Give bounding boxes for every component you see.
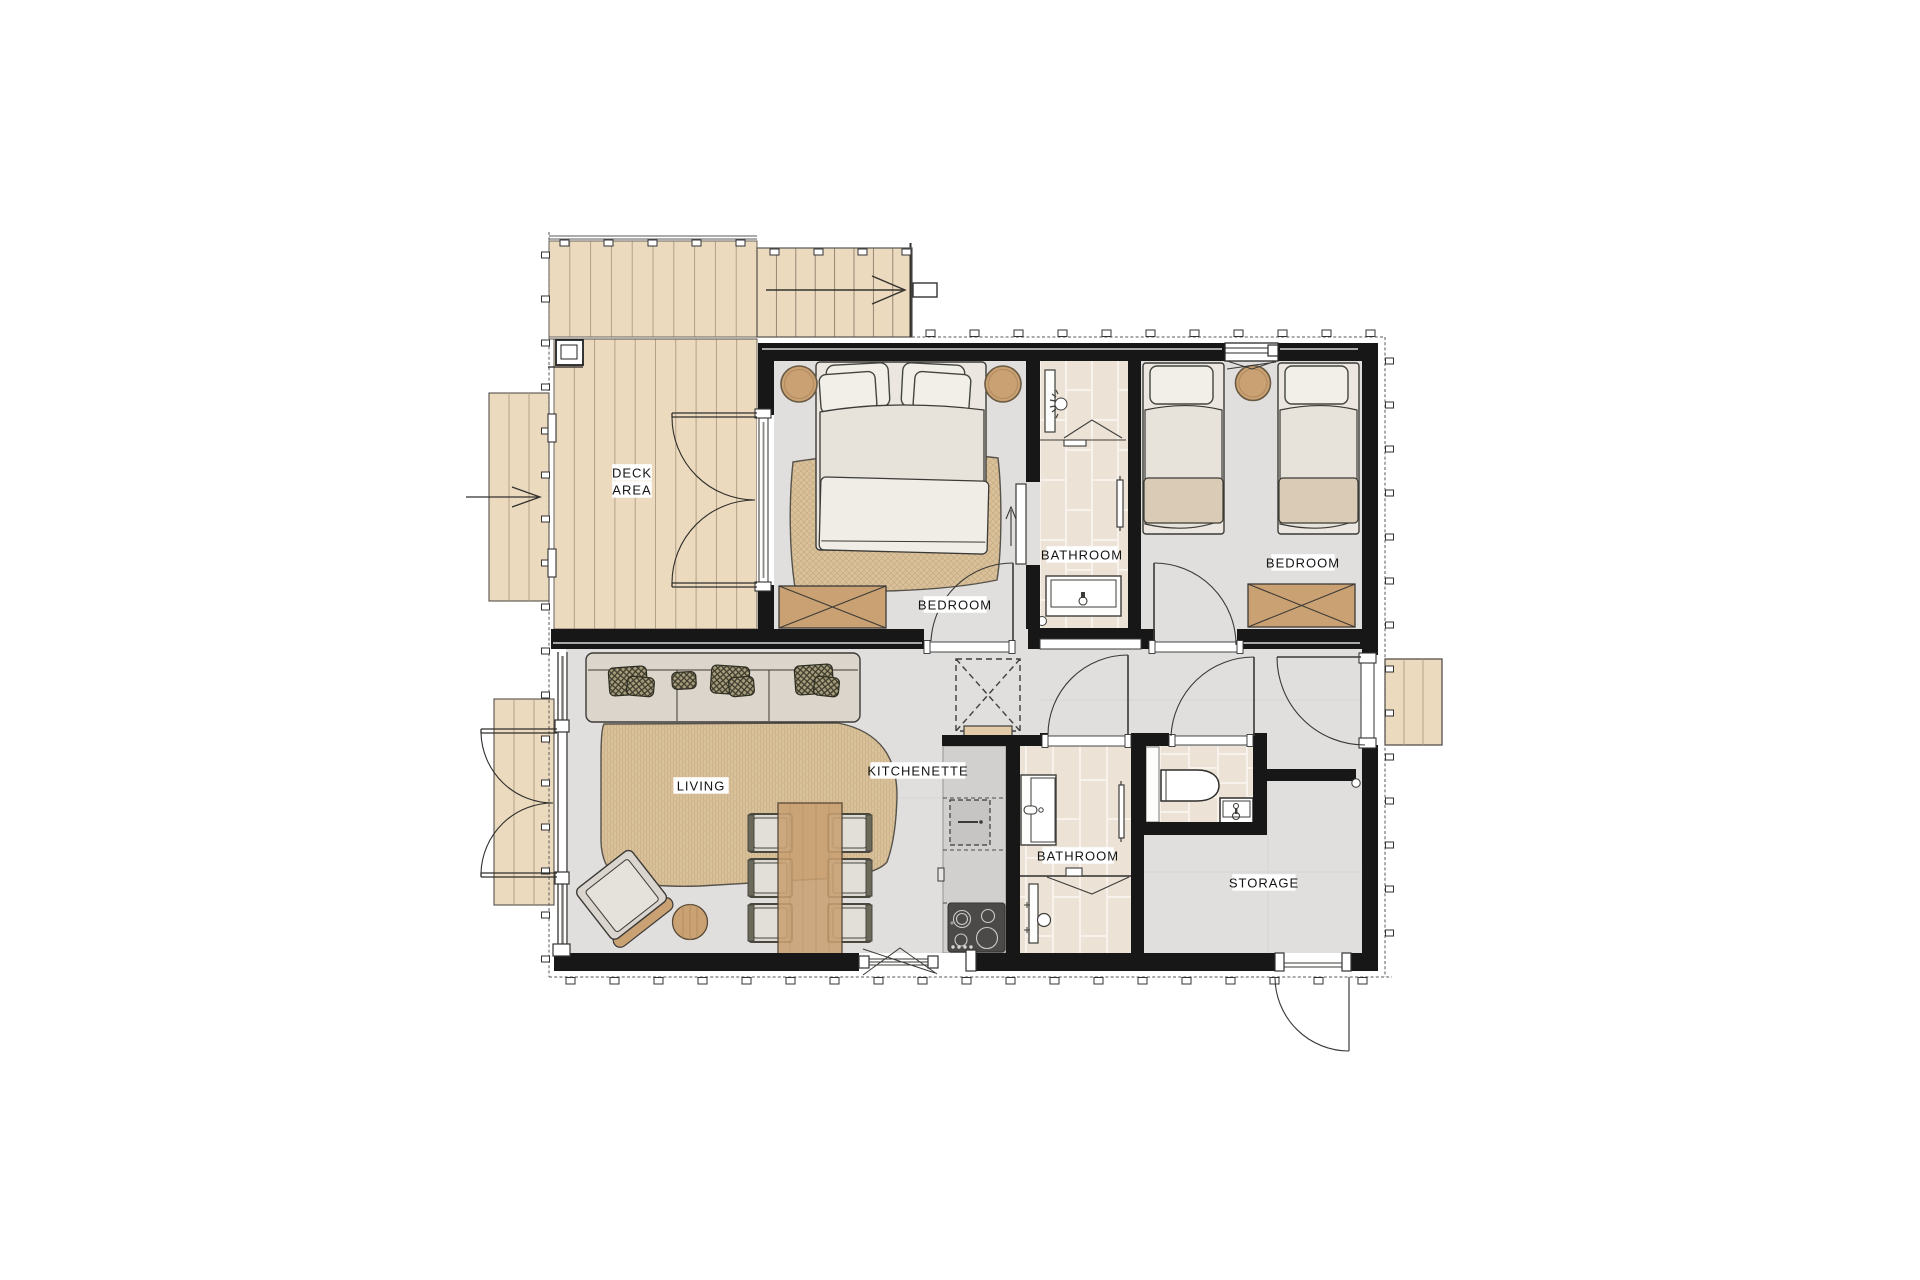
svg-text:BATHROOM: BATHROOM (1037, 849, 1119, 864)
svg-text:LIVING: LIVING (677, 779, 726, 794)
svg-text:BEDROOM: BEDROOM (1266, 556, 1340, 571)
svg-text:STORAGE: STORAGE (1229, 876, 1299, 891)
svg-text:BEDROOM: BEDROOM (918, 598, 992, 613)
svg-text:BATHROOM: BATHROOM (1041, 548, 1123, 563)
svg-text:KITCHENETTE: KITCHENETTE (867, 764, 968, 779)
svg-text:DECK: DECK (612, 466, 652, 481)
svg-text:AREA: AREA (612, 483, 651, 498)
